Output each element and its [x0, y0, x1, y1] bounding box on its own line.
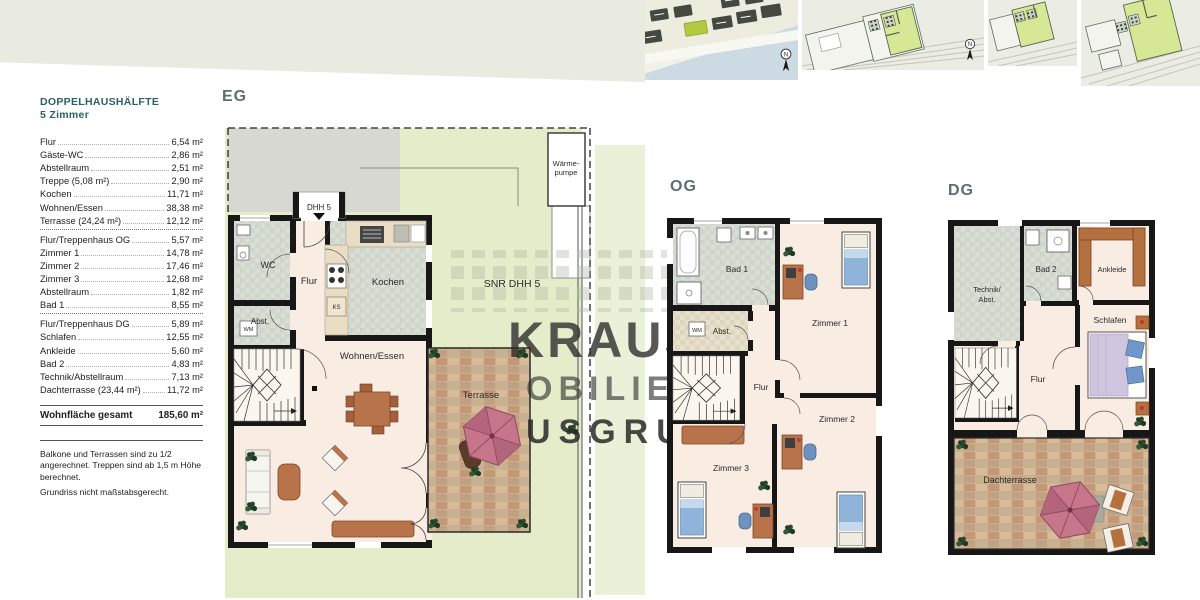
og-floor-plan: WM Bad 1 Abst. [660, 210, 890, 560]
table-row: Gäste-WC2,86 m² [40, 147, 203, 160]
label-technik-1: Technik/ [973, 285, 1001, 294]
fridge-label: KS [332, 305, 340, 311]
dg-floor-plan: Dachterrasse [940, 212, 1180, 572]
floor-title-dg: DG [948, 182, 974, 200]
unit-plan-thumbnail-1 [802, 0, 984, 70]
label-terrasse: Terrasse [463, 390, 499, 401]
floorplan-expose-page: N [0, 0, 1200, 600]
room-technik [954, 226, 1020, 341]
room-abst [673, 311, 748, 351]
entrance-label: DHH 5 [307, 203, 332, 212]
floor-title-eg: EG [222, 88, 247, 106]
table-row: Schlafen12,55 m² [40, 329, 203, 342]
label-flur: Flur [301, 276, 317, 287]
room-area-table: Flur6,54 m² Gäste-WC2,86 m² Abstellraum2… [40, 134, 203, 395]
label-wc: WC [261, 260, 276, 270]
table-row: Flur6,54 m² [40, 134, 203, 147]
table-row: Zimmer 114,78 m² [40, 245, 203, 258]
site-number-label: SNR DHH 5 [484, 278, 541, 290]
label-ankleide: Ankleide [1098, 265, 1127, 274]
label-flur: Flur [1031, 374, 1046, 384]
heat-pump-label-2: pumpe [555, 168, 578, 177]
wm-label: WM [692, 328, 702, 334]
table-row: Terrasse (24,24 m²)12,12 m² [40, 213, 203, 226]
neighbor-utility-box [552, 206, 590, 278]
neighbor-garden-strip [595, 145, 645, 595]
total-area-row: Wohnfläche gesamt 185,60 m² [40, 405, 203, 426]
site-plan-thumbnail [645, 0, 798, 80]
table-row: Zimmer 217,46 m² [40, 258, 203, 271]
label-abst: Abst. [251, 317, 269, 326]
table-row: Abstellraum1,82 m² [40, 284, 203, 297]
coffee-table [278, 464, 300, 500]
sink-icon [237, 225, 250, 235]
label-zimmer2: Zimmer 2 [819, 414, 855, 424]
support-post [312, 386, 317, 391]
label-bad2: Bad 2 [1036, 265, 1057, 274]
footnote-2: Grundriss nicht maßstabsgerecht. [40, 487, 203, 499]
table-row: Ankleide5,60 m² [40, 342, 203, 355]
table-row: Abstellraum2,51 m² [40, 160, 203, 173]
table-row: Zimmer 312,68 m² [40, 271, 203, 284]
table-row: Flur/Treppenhaus OG5,57 m² [40, 232, 203, 245]
label-wohnen: Wohnen/Essen [340, 351, 404, 362]
footnote-1: Balkone und Terrassen sind zu 1/2 angere… [40, 449, 203, 484]
heat-pump-label-1: Wärme- [553, 159, 580, 168]
table-group-separator [40, 313, 203, 314]
sink-icon [394, 225, 409, 242]
label-zimmer1: Zimmer 1 [812, 318, 848, 328]
property-title-line2: 5 Zimmer [40, 109, 203, 122]
label-bad1: Bad 1 [726, 264, 748, 274]
cooktop-icon [327, 264, 346, 288]
table-row: Technik/Abstellraum7,13 m² [40, 369, 203, 382]
unit-plan-thumbnail-2 [988, 0, 1077, 66]
label-technik-2: Abst. [978, 295, 995, 304]
wm-label: WM [244, 327, 254, 333]
table-row: Flur/Treppenhaus DG5,89 m² [40, 316, 203, 329]
table-row: Wohnen/Essen38,38 m² [40, 199, 203, 212]
unit-plan-thumbnail-3 [1081, 0, 1200, 86]
area-table-panel: DOPPELHAUSHÄLFTE 5 Zimmer Flur6,54 m² Gä… [40, 96, 203, 499]
table-row: Bad 18,55 m² [40, 297, 203, 310]
table-row: Dachterrasse (23,44 m²)11,72 m² [40, 382, 203, 395]
label-dachterrasse: Dachterrasse [983, 475, 1037, 485]
footnotes: Balkone und Terrassen sind zu 1/2 angere… [40, 440, 203, 499]
table-row: Bad 24,83 m² [40, 356, 203, 369]
total-label: Wohnfläche gesamt [40, 410, 132, 421]
label-flur: Flur [754, 382, 769, 392]
label-abst: Abst. [713, 327, 731, 336]
label-kochen: Kochen [372, 277, 404, 288]
label-schlafen: Schlafen [1093, 315, 1126, 325]
label-zimmer3: Zimmer 3 [713, 463, 749, 473]
property-title-line1: DOPPELHAUSHÄLFTE [40, 96, 203, 109]
table-row: Kochen11,71 m² [40, 186, 203, 199]
table-row: Treppe (5,08 m²)2,90 m² [40, 173, 203, 186]
table-group-separator [40, 229, 203, 230]
floor-title-og: OG [670, 178, 697, 196]
site-plan-graphic [645, 0, 798, 80]
terrace-chair [1103, 524, 1133, 553]
header-band [0, 0, 645, 82]
total-value: 185,60 m² [158, 410, 203, 421]
sideboard [332, 521, 414, 537]
double-bed [1088, 332, 1146, 398]
eg-floor-plan: Wärme- pumpe SNR DHH 5 [220, 118, 645, 600]
